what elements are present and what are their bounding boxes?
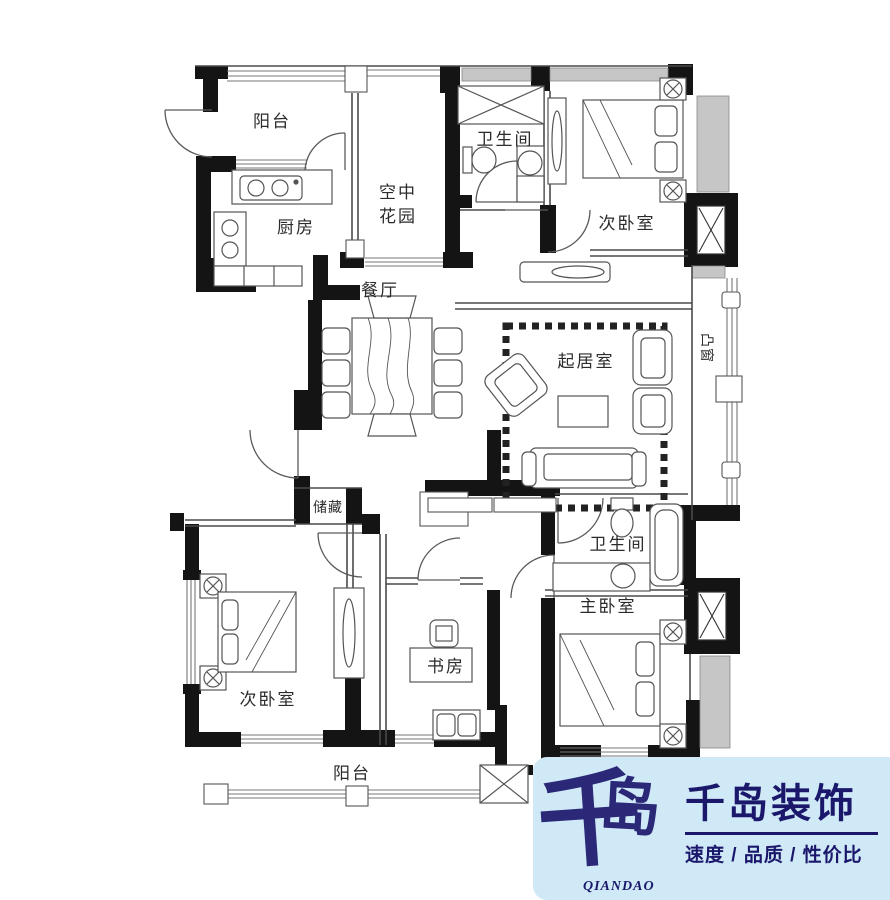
label-bath-top: 卫生间: [477, 130, 534, 149]
logo-text-block: 千岛装饰 速度 / 品质 / 性价比: [681, 757, 890, 900]
bedroom-top-right-furniture: [548, 78, 686, 202]
logo-romanized-text: QIANDAO: [583, 879, 655, 895]
floorplan-page: 阳台 厨房 空中 花园 卫生间 次卧室 餐厅 起居室 凸窗 储藏 次卧室 书房 …: [0, 0, 890, 900]
label-study: 书房: [427, 657, 465, 676]
label-bedroom-top-right: 次卧室: [599, 214, 656, 233]
company-name: 千岛装饰: [685, 783, 878, 825]
master-bedroom-furniture: [560, 620, 686, 748]
logo-divider: [685, 832, 878, 835]
elevator-top-right: [684, 193, 738, 267]
bedroom-bottom-left-furniture: [200, 574, 296, 690]
balcony-planter-box: [480, 765, 528, 803]
label-living: 起居室: [558, 352, 615, 371]
label-kitchen: 厨房: [277, 218, 315, 237]
dining-table-set: [322, 296, 462, 436]
logo-calligraphy: 千 岛 QIANDAO: [533, 757, 681, 900]
study-furniture: [410, 620, 480, 740]
label-balcony-bottom: 阳台: [333, 764, 371, 783]
label-bedroom-bottom-left: 次卧室: [240, 690, 297, 709]
calligraphy-char-dao: 岛: [597, 757, 664, 849]
label-dining: 餐厅: [361, 281, 399, 300]
hall-cabinets: [420, 492, 556, 526]
label-master-bedroom: 主卧室: [580, 597, 637, 616]
company-logo: 千 岛 QIANDAO 千岛装饰 速度 / 品质 / 性价比: [533, 757, 890, 900]
label-sky-garden-line2: 花园: [379, 207, 417, 226]
label-sky-garden-line1: 空中: [379, 183, 417, 202]
elevator-bottom-right: [684, 578, 740, 654]
label-balcony-top: 阳台: [253, 112, 291, 131]
company-tagline: 速度 / 品质 / 性价比: [685, 840, 878, 867]
wardrobes: [334, 588, 364, 678]
label-bay-window: 凸窗: [698, 333, 715, 363]
label-storage: 储藏: [313, 500, 343, 516]
label-bath-bottom: 卫生间: [590, 535, 647, 554]
corridor-dresser: [520, 262, 610, 282]
